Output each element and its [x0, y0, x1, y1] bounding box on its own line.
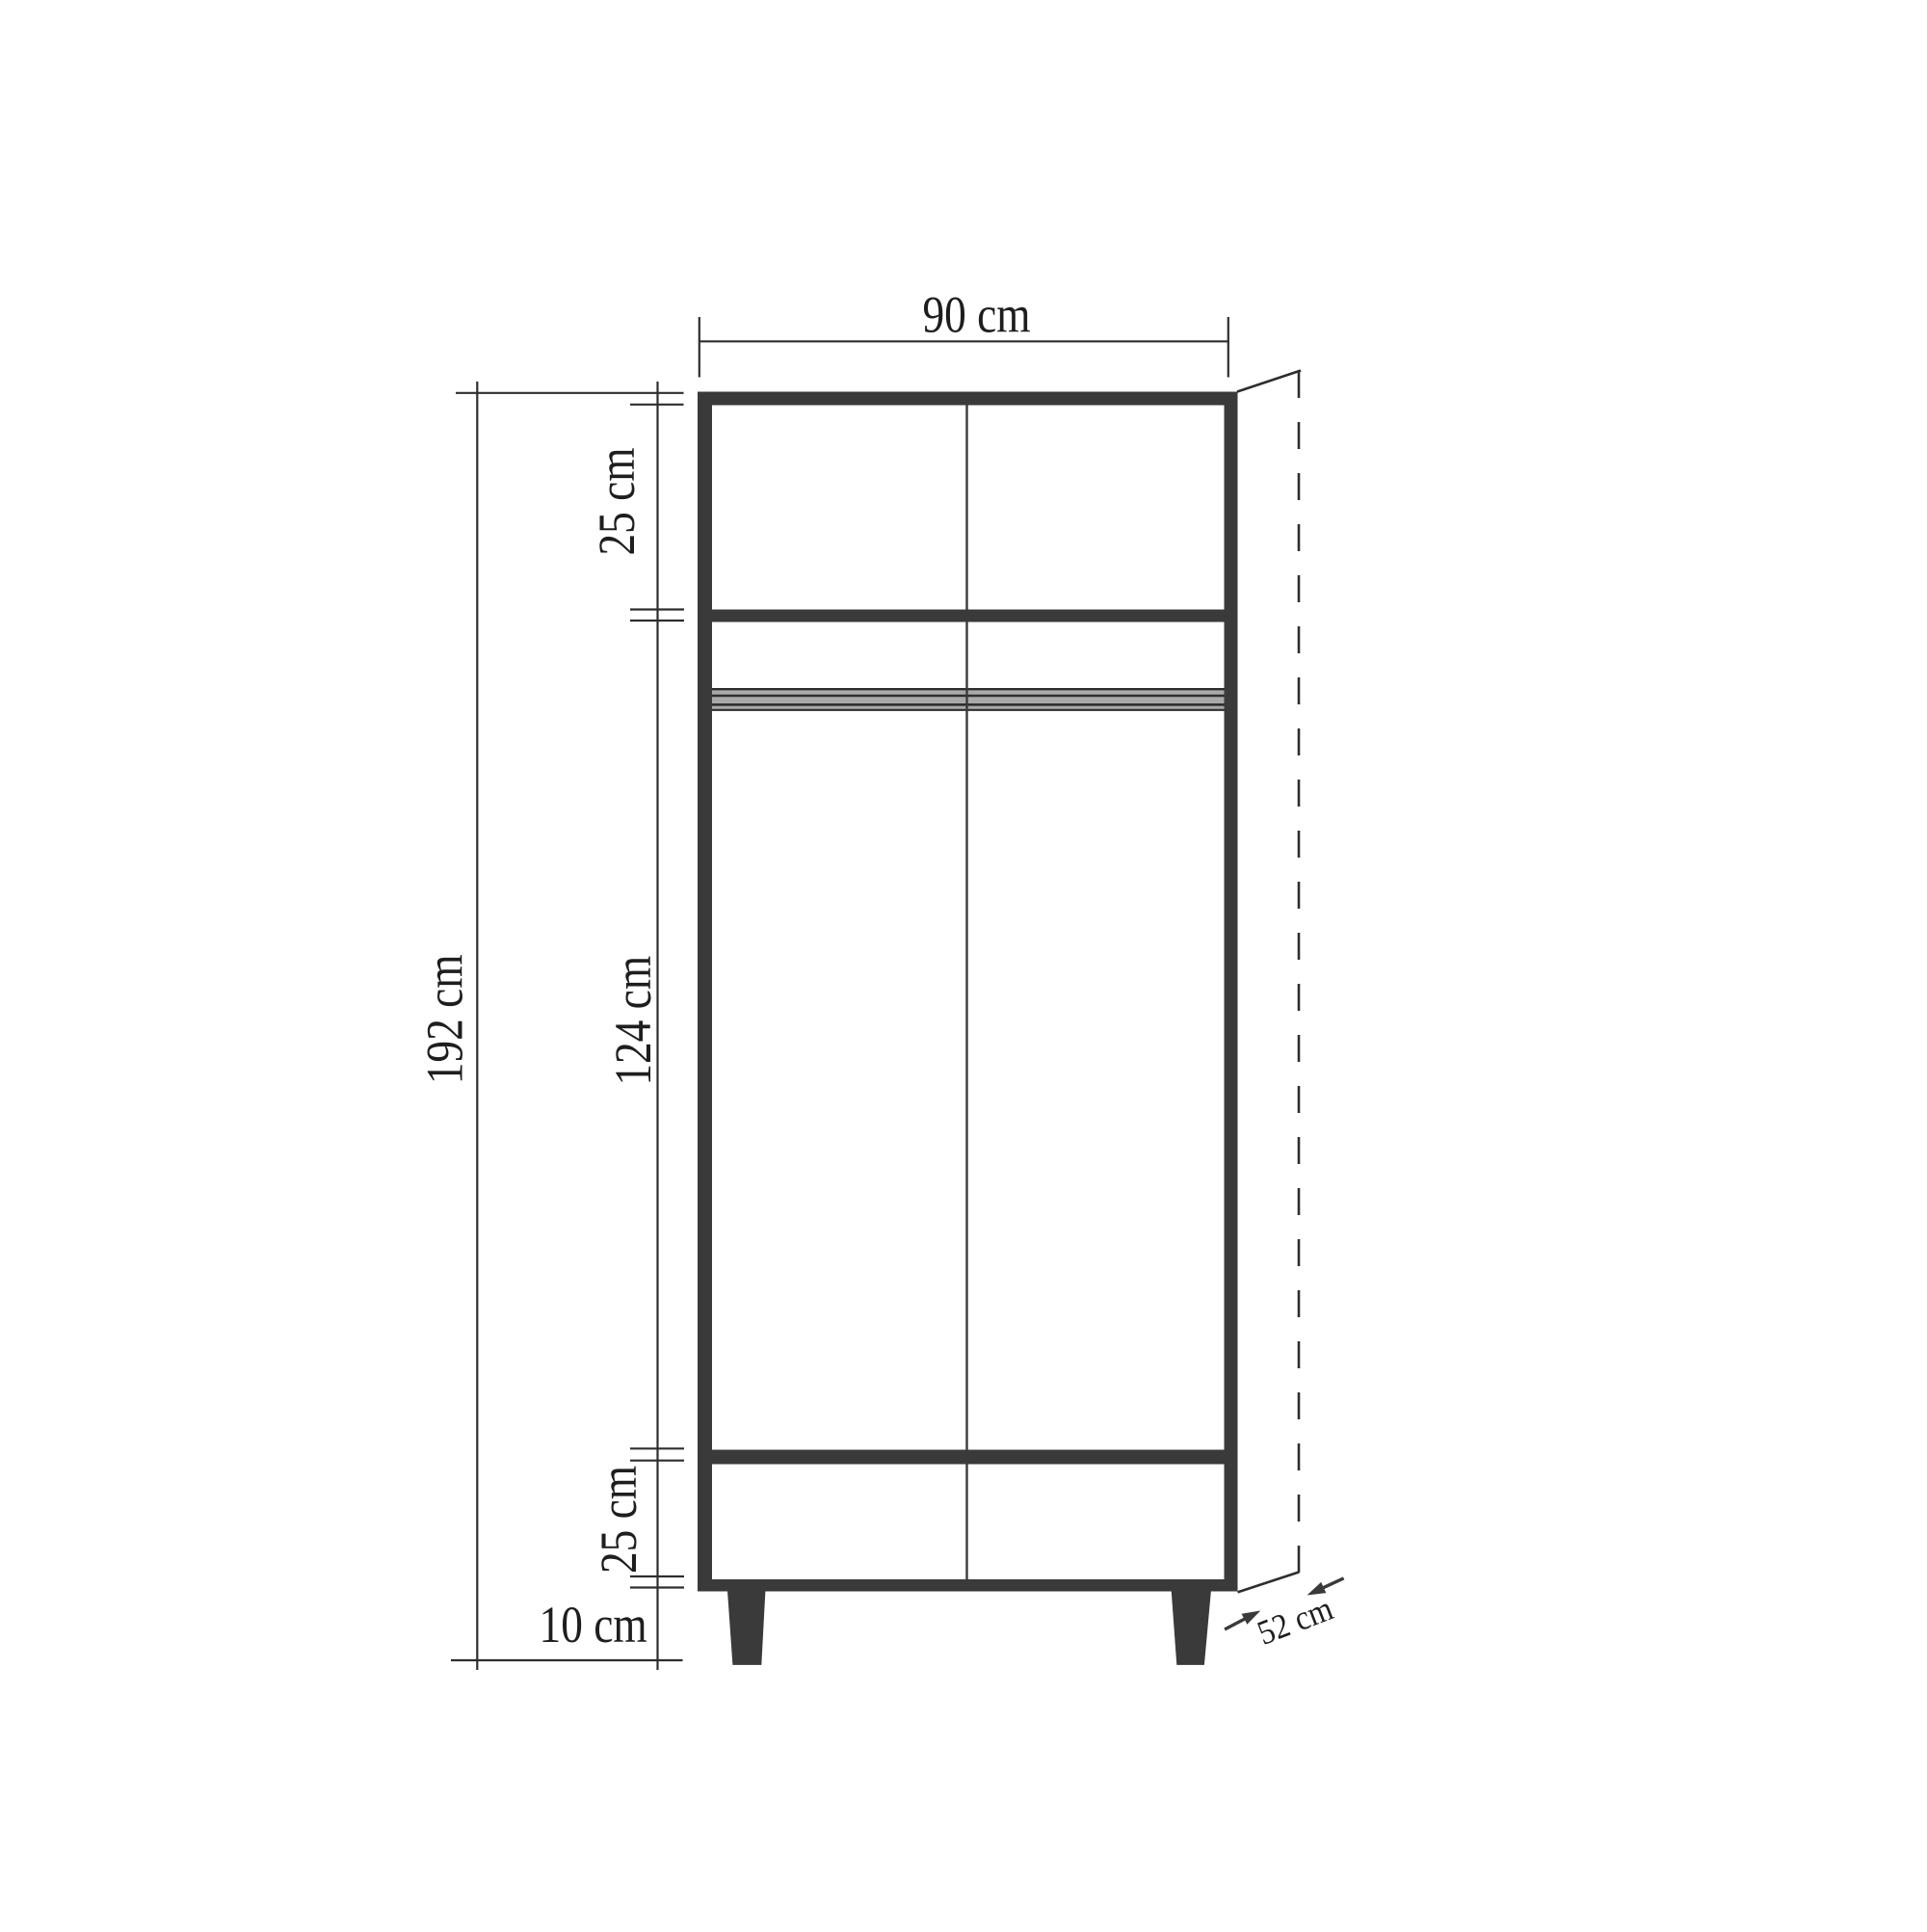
- svg-text:192 cm: 192 cm: [416, 955, 474, 1085]
- svg-text:25 cm: 25 cm: [588, 447, 646, 555]
- svg-text:25 cm: 25 cm: [590, 1466, 647, 1574]
- svg-text:124 cm: 124 cm: [604, 956, 662, 1086]
- svg-text:90 cm: 90 cm: [922, 286, 1030, 344]
- svg-text:10 cm: 10 cm: [540, 1596, 647, 1654]
